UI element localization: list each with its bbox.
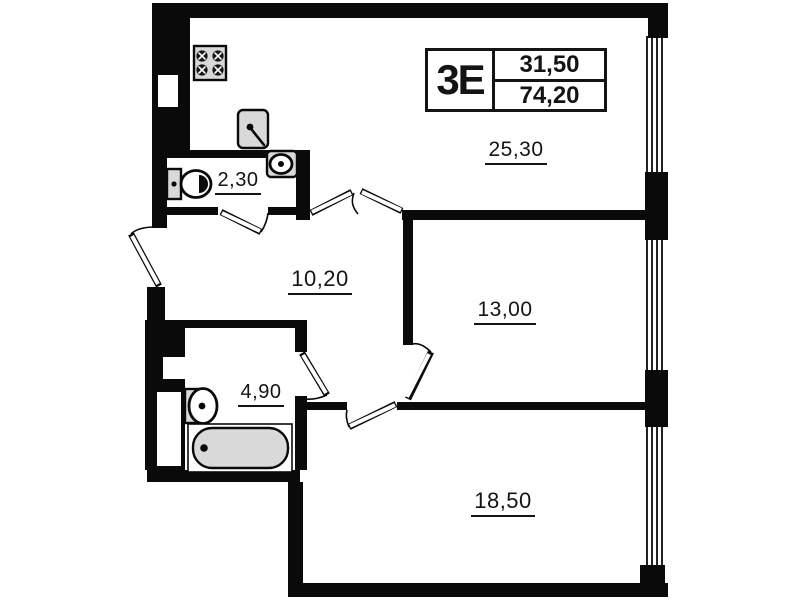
wall-wc-bottom-right: [268, 207, 310, 215]
wall-bath-right-lower: [295, 396, 307, 470]
unit-areas: 31,50 74,20: [495, 51, 604, 109]
unit-type-label: 3Е: [428, 51, 495, 109]
door-leaf: [362, 192, 401, 210]
door-leaf: [350, 405, 395, 426]
wall-corner-top-right: [648, 3, 668, 38]
room-label-bedroom: 13,00: [464, 298, 546, 325]
door-leaf: [303, 355, 326, 393]
wall-top: [152, 3, 668, 18]
shaft-niche-icon: [163, 357, 185, 379]
room-area-value: 10,20: [288, 266, 352, 295]
window-symbol-middle: [647, 239, 662, 371]
room-area-value: 18,50: [471, 488, 535, 517]
shaft-niche-icon: [157, 392, 181, 466]
wall-corner-bottom-right: [640, 565, 665, 597]
bathroom-washbasin-icon: [185, 389, 217, 424]
wall-hall-bedroom: [403, 218, 413, 345]
bathtub-icon: [188, 424, 292, 472]
wall-left-mid: [147, 287, 165, 320]
wc-door: [221, 212, 268, 232]
door-swing-arc: [131, 227, 155, 234]
bedroom-door: [407, 344, 431, 399]
room-label-living-room: 18,50: [461, 488, 545, 517]
wall-hall-bottom-left: [307, 402, 347, 410]
room-label-wc: 2,30: [204, 169, 272, 195]
wall-living-hall: [402, 210, 648, 220]
floor-plan: 25,30 2,30 10,20 13,00 4,90 18,50 3Е 31,…: [0, 0, 799, 600]
floor-plan-drawing: [0, 0, 799, 600]
wall-left-bottom: [288, 482, 303, 597]
stove-body: [194, 46, 226, 80]
kitchen-sink-icon: [238, 110, 268, 148]
shaft-niche-icon: [158, 75, 178, 107]
washbasin-drain: [278, 161, 284, 167]
wall-right-pier-1: [645, 172, 668, 240]
bathroom-door: [302, 353, 327, 399]
door-leaf: [132, 236, 158, 284]
room-area-value: 2,30: [215, 169, 262, 195]
unit-living-area: 31,50: [495, 51, 604, 82]
toilet-tank-button: [171, 181, 176, 186]
wall-left-wc: [152, 150, 167, 228]
wall-wc-bottom-left: [152, 207, 218, 215]
stove-icon: [194, 46, 226, 80]
window-symbol-bottom: [647, 426, 662, 566]
wall-hall-bottom-right: [397, 402, 648, 410]
bathtub-drain: [200, 444, 208, 452]
washbasin-drain: [199, 403, 206, 410]
room-area-value: 4,90: [238, 381, 285, 407]
wall-right-pier-2: [645, 370, 668, 427]
wall-bath-right-upper: [295, 328, 307, 352]
room-label-bathroom: 4,90: [228, 381, 294, 407]
window-symbol-top: [647, 36, 662, 173]
room-area-value: 13,00: [474, 298, 535, 325]
wall-bottom: [288, 583, 668, 597]
room-area-value: 25,30: [485, 138, 546, 165]
door-swing-arc: [352, 193, 358, 214]
door-leaf: [407, 354, 429, 397]
unit-info-table: 3Е 31,50 74,20: [425, 48, 607, 112]
door-leaf: [312, 193, 351, 212]
wall-bath-top: [147, 320, 307, 328]
double-door-living: [311, 191, 402, 214]
room-label-kitchen-living: 25,30: [470, 138, 562, 165]
living-room-door: [346, 404, 396, 427]
door-leaf: [222, 213, 260, 231]
unit-total-area: 74,20: [495, 82, 604, 110]
entry-door: [131, 227, 159, 286]
room-label-hallway: 10,20: [278, 266, 362, 295]
